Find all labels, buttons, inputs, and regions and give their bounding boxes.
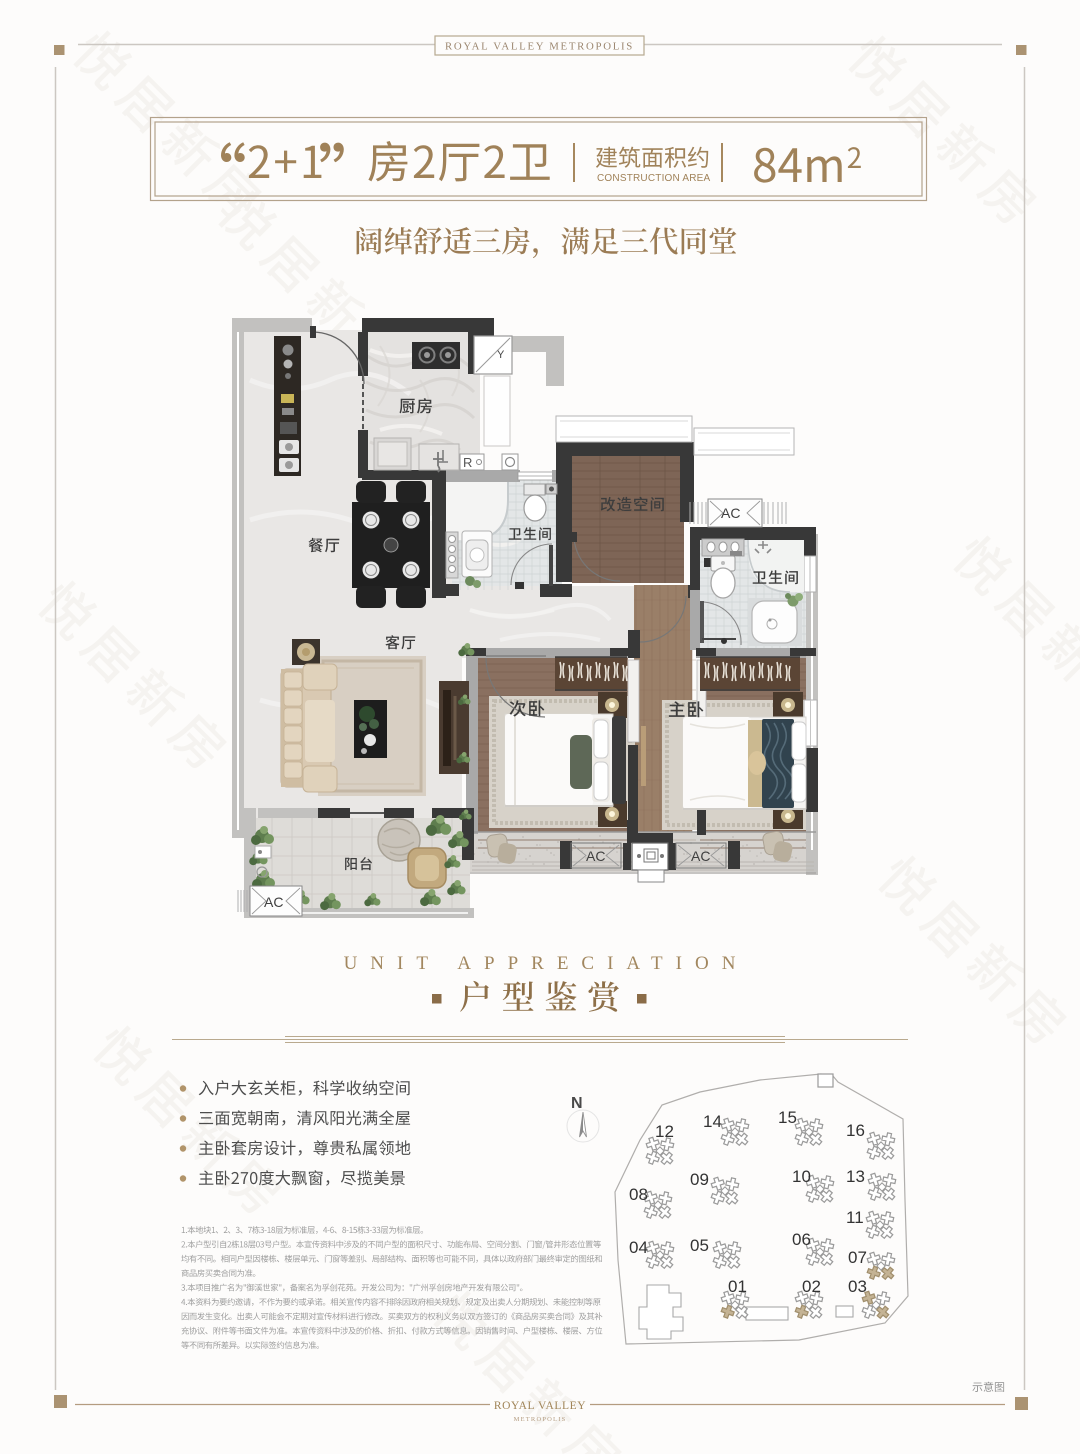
svg-text:14: 14	[703, 1112, 722, 1131]
svg-text:12: 12	[655, 1122, 674, 1141]
svg-text:N: N	[571, 1095, 583, 1112]
svg-text:ROYAL VALLEY METROPOLIS: ROYAL VALLEY METROPOLIS	[445, 41, 634, 53]
svg-text:AC: AC	[721, 505, 740, 521]
svg-text:AC: AC	[691, 848, 710, 864]
svg-text:CONSTRUCTION AREA: CONSTRUCTION AREA	[597, 173, 711, 184]
svg-text:Y: Y	[497, 349, 505, 361]
svg-text:15: 15	[778, 1108, 797, 1127]
svg-text:UNIT APPRECIATION: UNIT APPRECIATION	[344, 953, 749, 974]
svg-text:11: 11	[846, 1208, 864, 1227]
svg-text:01: 01	[728, 1277, 747, 1296]
svg-text:09: 09	[690, 1170, 709, 1189]
svg-text:05: 05	[690, 1236, 709, 1255]
svg-text:16: 16	[846, 1121, 865, 1140]
svg-text:METROPOLIS: METROPOLIS	[514, 1416, 567, 1423]
svg-text:13: 13	[846, 1167, 865, 1186]
svg-text:03: 03	[848, 1277, 867, 1296]
svg-text:04: 04	[629, 1238, 648, 1257]
svg-text:AC: AC	[586, 848, 605, 864]
svg-text:02: 02	[802, 1277, 821, 1296]
svg-text:06: 06	[792, 1230, 811, 1249]
svg-text:R: R	[463, 455, 472, 470]
svg-text:10: 10	[792, 1167, 811, 1186]
svg-text:08: 08	[629, 1185, 648, 1204]
svg-text:AC: AC	[264, 894, 283, 910]
svg-text:07: 07	[848, 1248, 867, 1267]
svg-text:ROYAL VALLEY: ROYAL VALLEY	[494, 1400, 586, 1412]
